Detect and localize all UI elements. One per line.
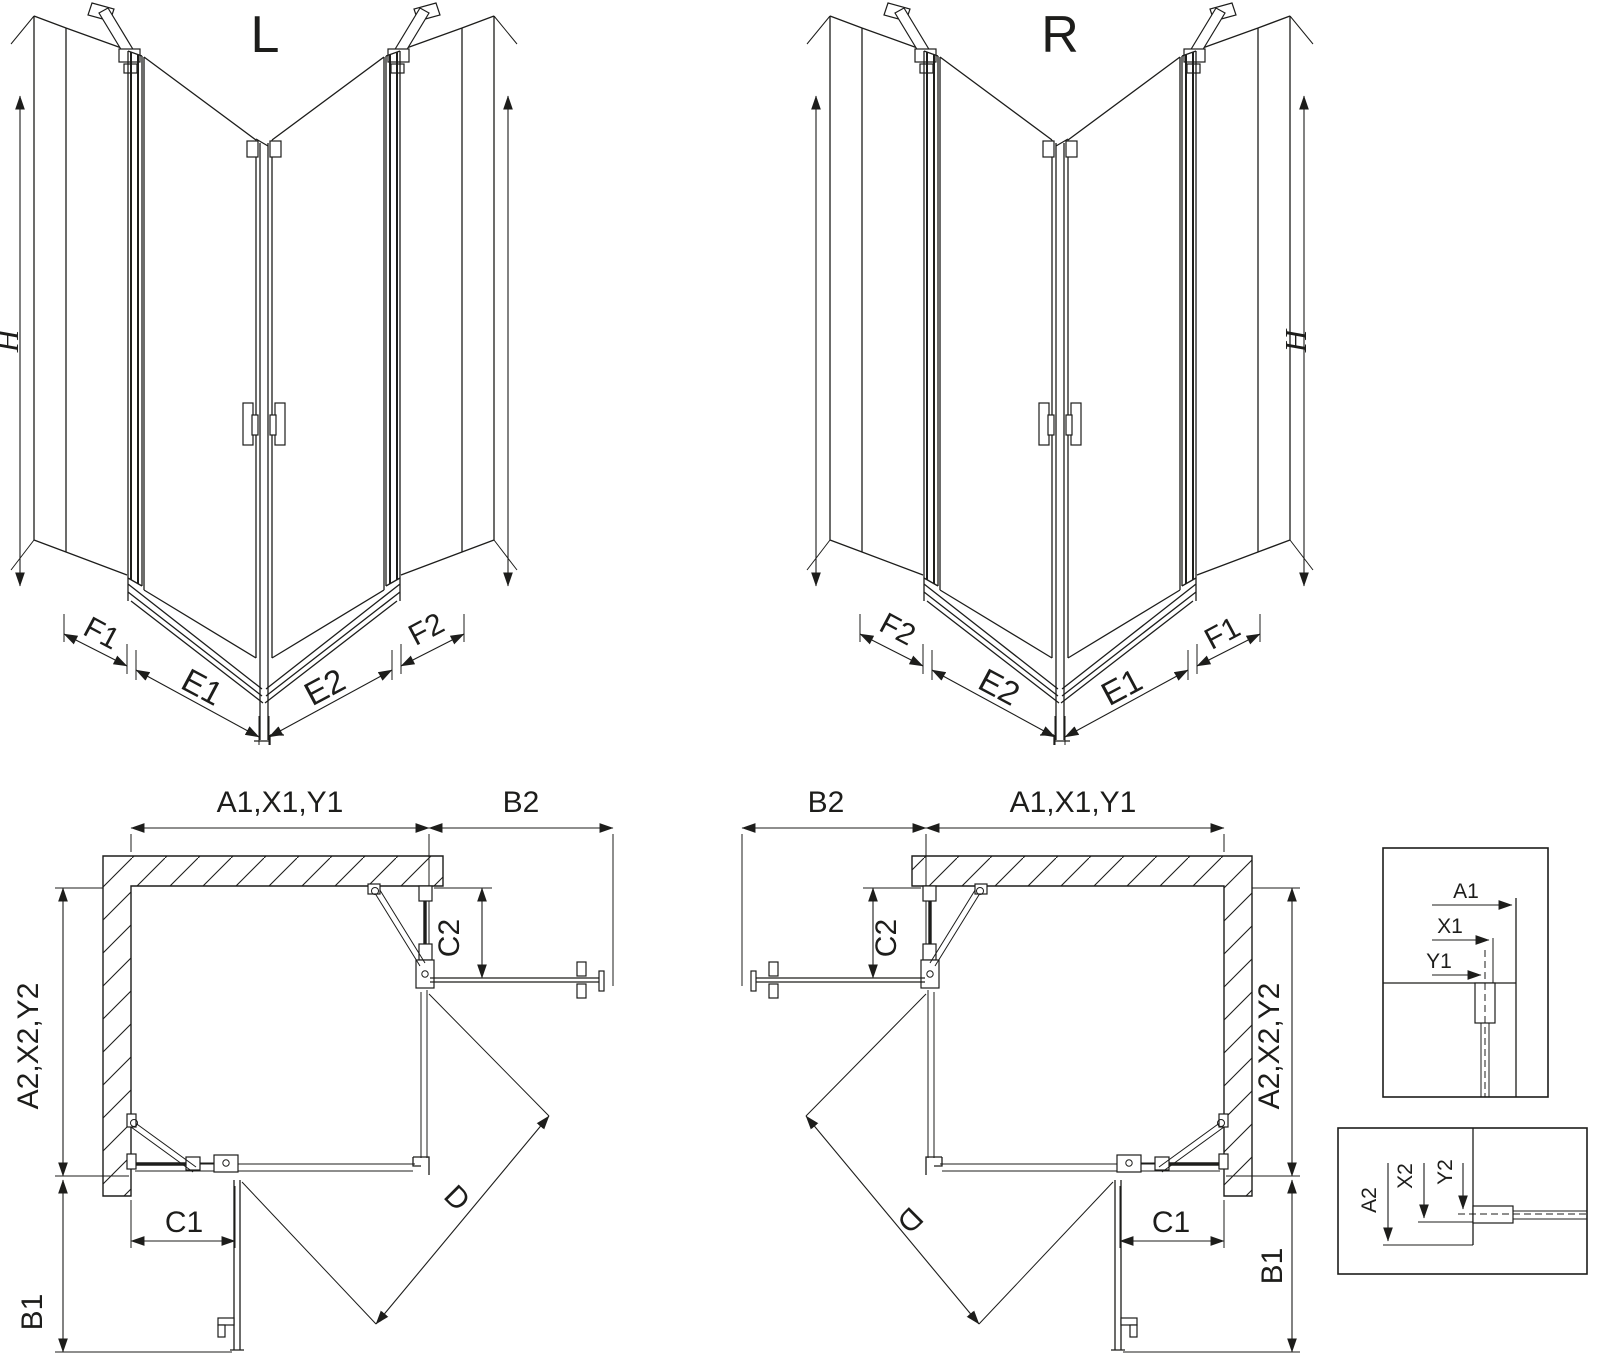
detail-bottom-a2-label: A2 [1358,1187,1381,1213]
detail-top-y1-label: Y1 [1426,950,1452,973]
plan-right-width-label: A1,X1,Y1 [1010,786,1137,819]
iso-left-e2-label: E2 [298,661,351,713]
plan-left-b1-label: B1 [16,1294,49,1331]
iso-left-title: L [251,6,280,64]
iso-right-f1-label: F1 [1199,611,1245,657]
plan-left-c1-label: C1 [165,1206,203,1239]
plan-right-b2-label: B2 [808,786,845,819]
detail-box-top: A1 X1 Y1 [1383,848,1548,1097]
plan-right-depth-label: A2,X2,Y2 [1253,983,1286,1110]
plan-left-b2-label: B2 [503,786,540,819]
detail-box-bottom: A2 X2 Y2 [1338,1128,1587,1274]
plan-view-right: B2 A1,X1,Y1 C2 A2,X2,Y2 C1 B1 D [742,786,1300,1352]
plan-right-c1-label: C1 [1152,1206,1190,1239]
iso-right-e2-label: E2 [973,661,1026,713]
technical-drawing-canvas: L H F1 E1 E2 F2 R H F2 E2 E1 F1 A1,X1,Y1… [0,0,1600,1359]
plan-left-depth-label: A2,X2,Y2 [12,983,45,1110]
plan-left-d-label: D [437,1179,476,1218]
iso-left-height-label: H [0,328,25,353]
iso-right-title: R [1041,6,1079,64]
iso-view-right: R H F2 E2 E1 F1 [807,3,1313,745]
detail-bottom-x2-label: X2 [1394,1163,1417,1189]
iso-left-e1-label: E1 [176,661,229,713]
iso-right-f2-label: F2 [874,607,920,653]
plan-right-d-label: D [890,1200,929,1239]
detail-bottom-y2-label: Y2 [1434,1159,1457,1185]
plan-right-c2-label: C2 [870,919,903,957]
plan-left-width-label: A1,X1,Y1 [217,786,344,819]
plan-left-c2-label: C2 [433,919,466,957]
iso-right-height-label: H [1278,328,1313,353]
plan-right-b1-label: B1 [1256,1248,1289,1285]
iso-view-left: L H F1 E1 E2 F2 [0,3,517,745]
detail-top-x1-label: X1 [1437,915,1463,938]
detail-top-a1-label: A1 [1453,880,1479,903]
iso-left-f2-label: F2 [403,607,449,653]
shower-enclosure-drawing: L H F1 E1 E2 F2 R H F2 E2 E1 F1 A1,X1,Y1… [0,0,1600,1359]
iso-right-e1-label: E1 [1095,661,1148,713]
plan-right-wall [912,856,1252,1196]
plan-view-left: A1,X1,Y1 B2 A2,X2,Y2 C2 C1 B1 D [12,786,613,1352]
plan-left-wall [103,856,443,1196]
iso-left-f1-label: F1 [78,611,124,657]
